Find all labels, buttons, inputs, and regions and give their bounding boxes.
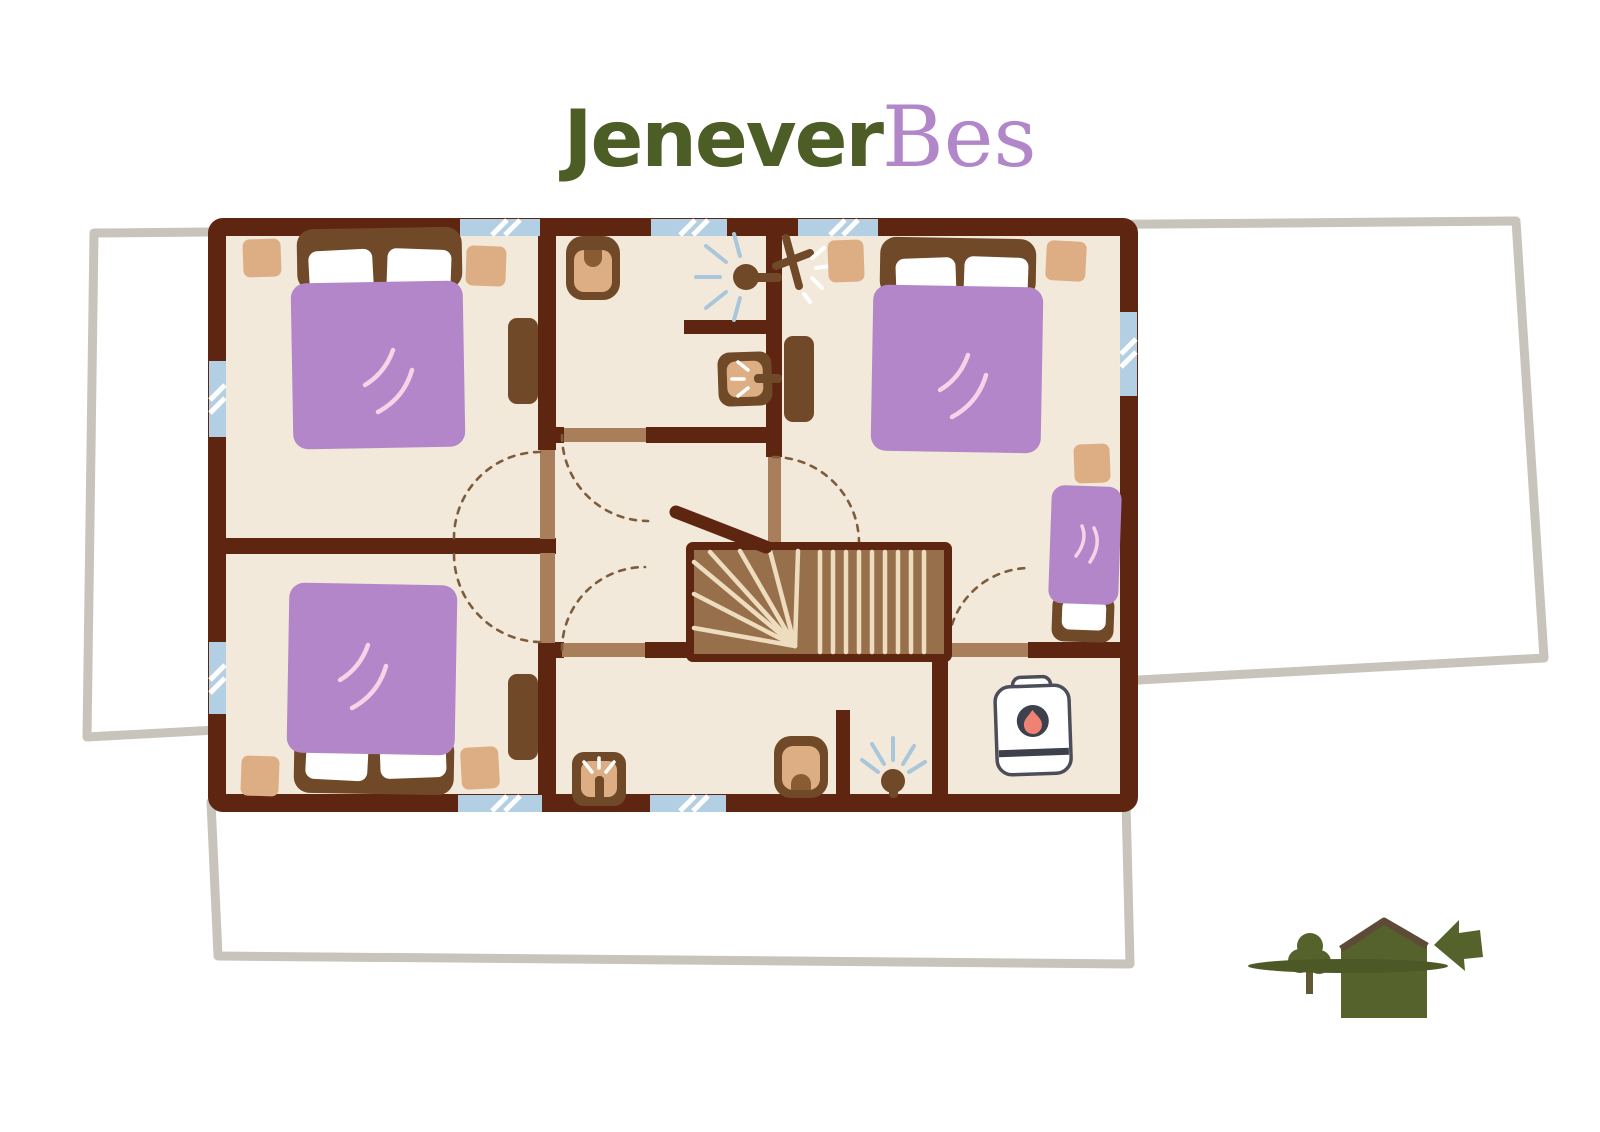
bed-blanket [871,285,1044,454]
window [798,219,878,236]
door-leaf [948,643,1028,657]
double-bed [871,237,1044,454]
window [209,642,226,714]
nightstand [240,755,279,796]
window [460,219,540,236]
arrow-left-icon [1434,920,1483,971]
double-bed [291,227,466,450]
window [650,795,726,812]
nightstand [827,239,864,282]
floorplan-canvas [0,0,1600,1132]
window [458,795,542,812]
dresser [784,336,814,422]
door-leaf [768,457,781,543]
toilet [566,236,620,300]
sink [572,752,626,806]
door-leaf [540,553,555,643]
nightstand [242,238,281,277]
door-leaf [562,643,645,657]
double-bed [287,583,458,796]
ground-outline-lower [211,802,1130,964]
bed-blanket [1048,485,1122,605]
door-leaf [540,450,555,539]
house-icon [1248,920,1483,1018]
door-leaf [564,428,646,442]
floorplan-illustration: JeneverBes [0,0,1600,1132]
ground-line [1248,959,1448,973]
nightstand [1045,240,1087,282]
nightstand [465,245,506,286]
single-bed [1048,485,1122,643]
boiler [994,676,1071,776]
toilet [774,736,828,798]
window [209,361,226,437]
nightstand [1073,443,1110,483]
window [1120,312,1137,396]
dresser [508,674,538,760]
nightstand [460,746,500,790]
window [651,219,727,236]
dresser [508,318,538,404]
bed-blanket [287,583,458,756]
bed-blanket [291,281,466,450]
